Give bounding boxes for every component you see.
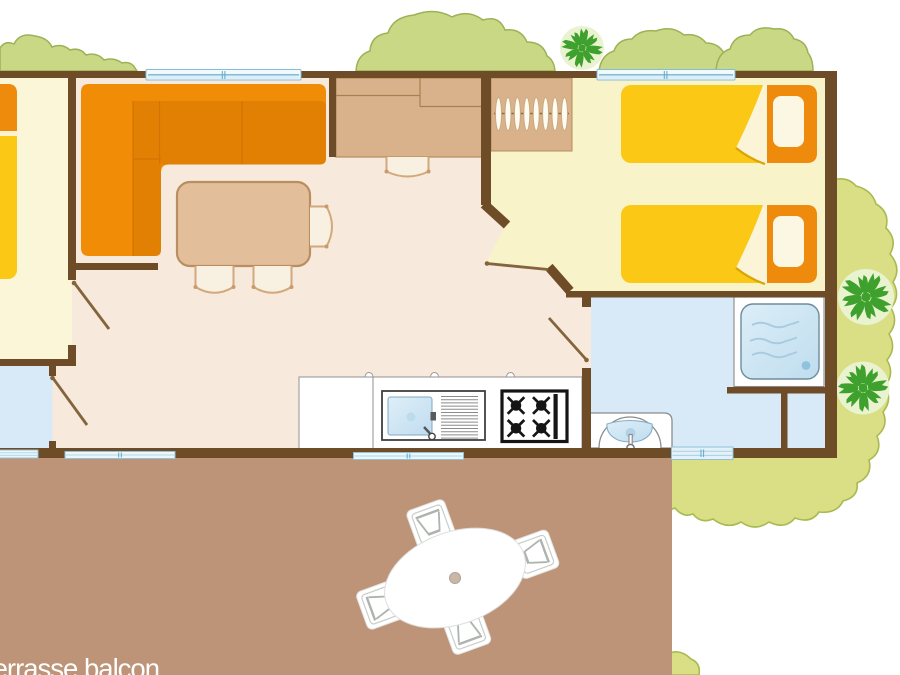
svg-text:terrasse balcon: terrasse balcon	[0, 653, 159, 675]
